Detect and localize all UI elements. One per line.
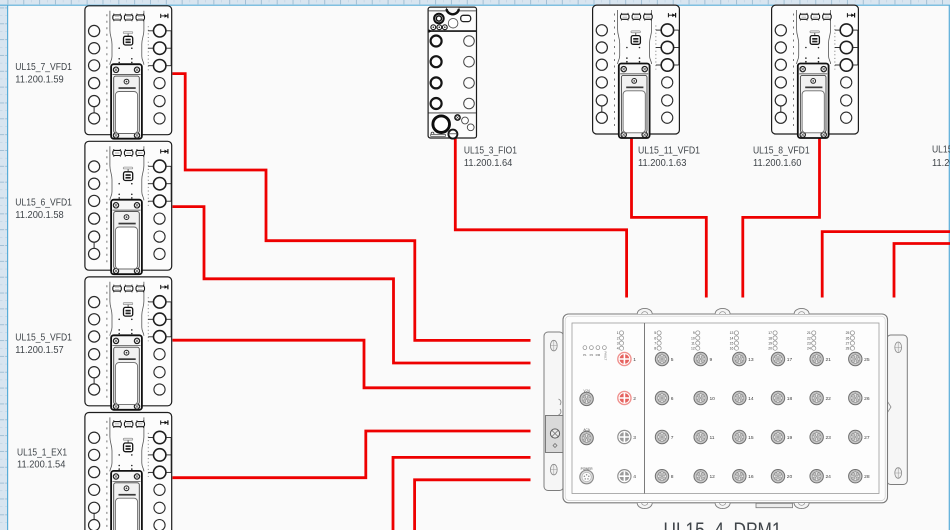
svg-text:28: 28 — [864, 474, 870, 480]
svg-text:18: 18 — [768, 336, 772, 340]
svg-text:3: 3 — [617, 341, 619, 345]
svg-text:UL15_5_VFD1: UL15_5_VFD1 — [15, 333, 72, 344]
svg-text:UL15_1_EX1: UL15_1_EX1 — [17, 448, 67, 459]
svg-text:16: 16 — [730, 347, 734, 351]
svg-text:17: 17 — [787, 357, 793, 363]
svg-text:17: 17 — [768, 331, 772, 335]
svg-text:18: 18 — [787, 396, 793, 402]
svg-text:19: 19 — [768, 341, 772, 345]
svg-text:11.200.1.57: 11.200.1.57 — [15, 345, 64, 356]
svg-text:11.200.1.61: 11.200.1.61 — [932, 158, 950, 169]
svg-text:1: 1 — [617, 331, 619, 335]
svg-text:11.200.1.58: 11.200.1.58 — [15, 210, 64, 221]
svg-text:4: 4 — [617, 347, 619, 351]
svg-text:6: 6 — [671, 396, 674, 402]
svg-text:UL15_6_VFD1: UL15_6_VFD1 — [15, 198, 72, 209]
svg-text:22: 22 — [825, 396, 831, 402]
svg-text:11: 11 — [709, 435, 714, 441]
svg-text:1: 1 — [633, 357, 636, 363]
svg-text:11: 11 — [691, 341, 695, 345]
svg-text:24: 24 — [825, 474, 831, 480]
svg-text:13: 13 — [748, 357, 754, 363]
svg-text:28: 28 — [846, 347, 850, 351]
svg-text:11.200.1.54: 11.200.1.54 — [17, 460, 66, 471]
svg-text:27: 27 — [864, 435, 870, 441]
svg-text:10: 10 — [709, 396, 715, 402]
svg-text:15: 15 — [730, 341, 734, 345]
svg-text:P1: P1 — [583, 353, 587, 357]
svg-text:2: 2 — [633, 396, 636, 402]
svg-text:11.200.1.63: 11.200.1.63 — [638, 158, 687, 169]
svg-text:11.200.1.59: 11.200.1.59 — [15, 75, 64, 86]
svg-text:19: 19 — [787, 435, 793, 441]
svg-text:9: 9 — [693, 331, 695, 335]
svg-text:12: 12 — [691, 347, 695, 351]
svg-text:24: 24 — [807, 347, 811, 351]
svg-text:20: 20 — [768, 347, 772, 351]
svg-text:UL15_7_VFD1: UL15_7_VFD1 — [15, 62, 72, 73]
svg-text:11.200.1.60: 11.200.1.60 — [753, 158, 802, 169]
svg-text:UL15_11_VFD1: UL15_11_VFD1 — [638, 146, 700, 157]
svg-text:8: 8 — [654, 347, 656, 351]
svg-text:8: 8 — [671, 474, 674, 480]
svg-text:26: 26 — [864, 396, 870, 402]
svg-text:21: 21 — [807, 331, 811, 335]
svg-text:UL15_4_DPM1: UL15_4_DPM1 — [664, 519, 782, 530]
svg-text:4: 4 — [633, 474, 636, 480]
svg-text:UL15_8_VFD1: UL15_8_VFD1 — [753, 146, 810, 157]
svg-text:14: 14 — [748, 396, 754, 402]
svg-text:16: 16 — [748, 474, 754, 480]
svg-text:5: 5 — [654, 331, 656, 335]
svg-text:3: 3 — [633, 435, 636, 441]
svg-text:UL15_9_VFD1: UL15_9_VFD1 — [932, 145, 950, 156]
svg-text:20: 20 — [787, 474, 793, 480]
svg-text:FAULT: FAULT — [603, 352, 607, 361]
svg-text:22: 22 — [807, 336, 811, 340]
svg-text:7: 7 — [671, 435, 674, 441]
svg-text:23: 23 — [825, 435, 831, 441]
svg-text:6: 6 — [654, 336, 656, 340]
svg-text:RM: RM — [596, 353, 601, 357]
svg-text:12: 12 — [709, 474, 715, 480]
svg-text:25: 25 — [864, 357, 870, 363]
svg-text:21: 21 — [825, 357, 831, 363]
svg-text:7: 7 — [654, 341, 656, 345]
svg-text:25: 25 — [846, 331, 850, 335]
svg-text:5: 5 — [671, 357, 674, 363]
svg-text:10: 10 — [691, 336, 695, 340]
svg-text:14: 14 — [730, 336, 734, 340]
svg-text:13: 13 — [730, 331, 734, 335]
svg-text:27: 27 — [846, 341, 850, 345]
svg-text:26: 26 — [846, 336, 850, 340]
svg-text:9: 9 — [709, 357, 712, 363]
svg-text:15: 15 — [748, 435, 754, 441]
svg-text:P2: P2 — [590, 353, 594, 357]
svg-text:23: 23 — [807, 341, 811, 345]
svg-text:UL15_3_FIO1: UL15_3_FIO1 — [464, 146, 517, 157]
svg-text:2: 2 — [617, 336, 619, 340]
svg-text:11.200.1.64: 11.200.1.64 — [464, 158, 513, 169]
